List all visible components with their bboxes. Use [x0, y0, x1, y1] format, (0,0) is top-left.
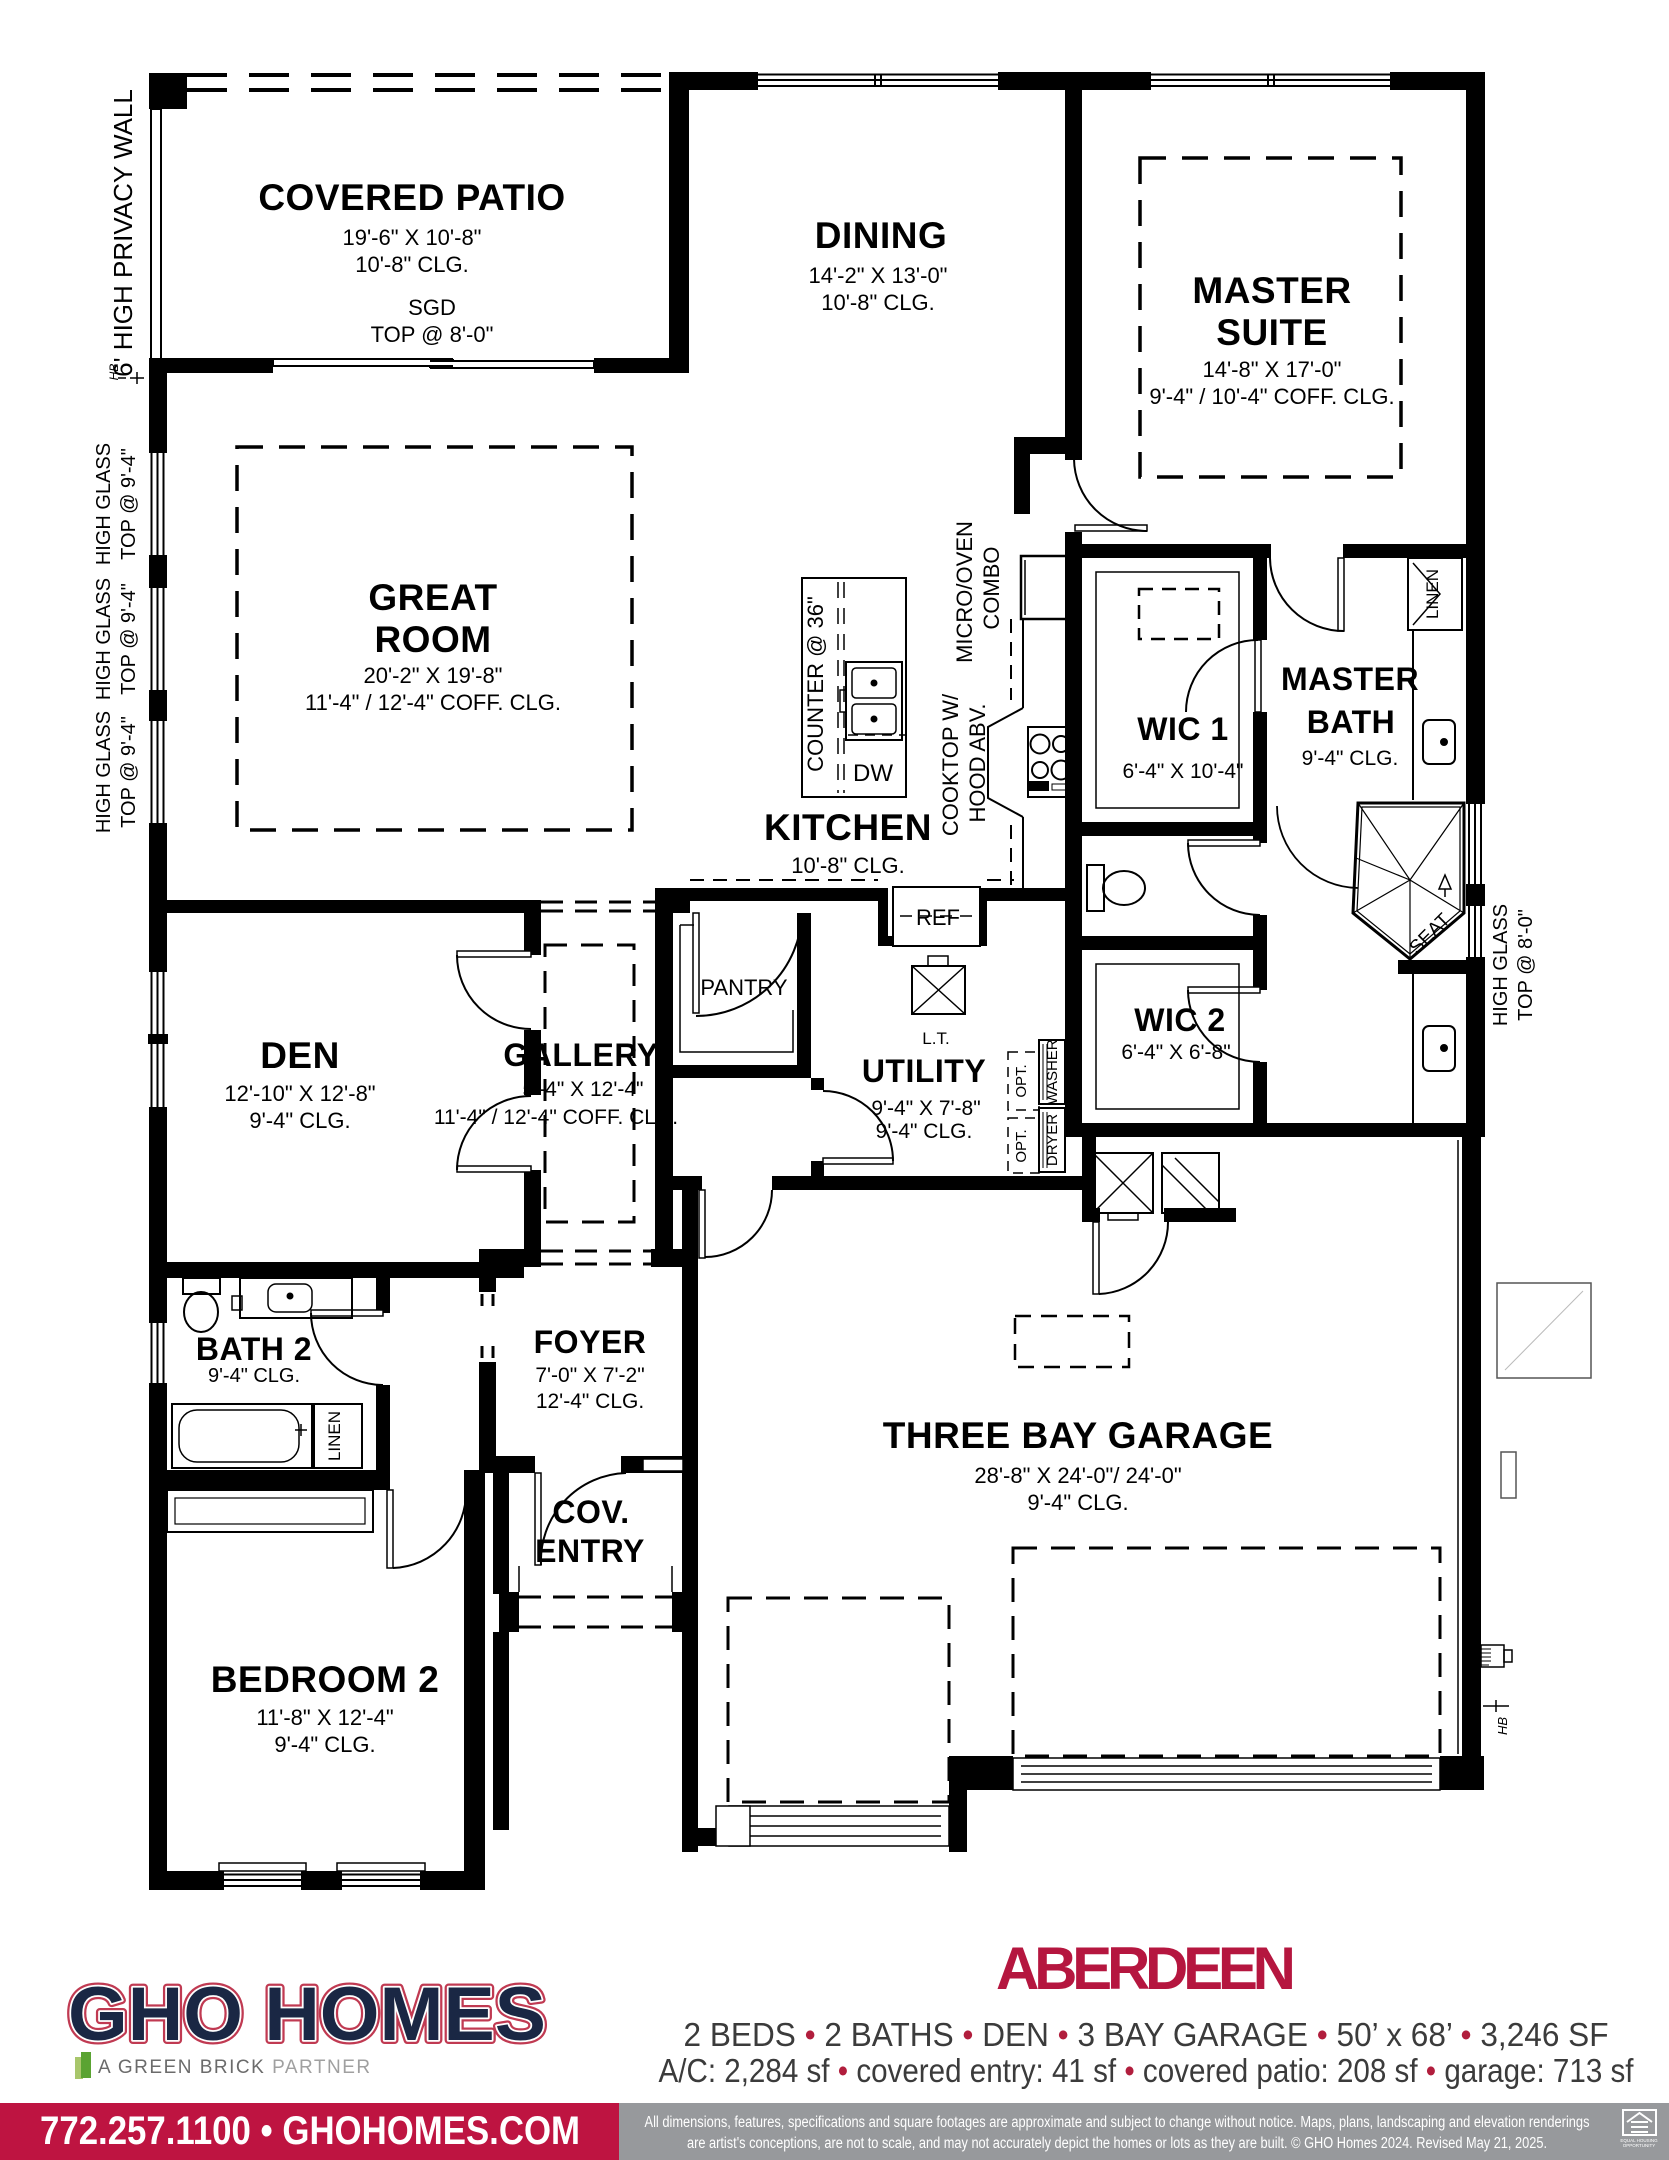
svg-text:ENTRY: ENTRY	[535, 1533, 645, 1569]
svg-text:All dimensions, features, spec: All dimensions, features, specifications…	[645, 2114, 1590, 2131]
svg-text:DW: DW	[853, 760, 893, 787]
svg-text:12'-10" X 12'-8": 12'-10" X 12'-8"	[224, 1081, 375, 1106]
svg-text:TOP @ 9'-4": TOP @ 9'-4"	[118, 448, 140, 560]
svg-text:COVERED PATIO: COVERED PATIO	[258, 177, 565, 218]
svg-text:TOP @ 9'-4": TOP @ 9'-4"	[118, 583, 140, 695]
svg-text:are artist's conceptions, are: are artist's conceptions, are not to sca…	[687, 2135, 1547, 2152]
svg-text:BATH: BATH	[1307, 704, 1396, 740]
svg-text:A/C: 2,284 sf • covered entry:: A/C: 2,284 sf • covered entry: 41 sf • c…	[659, 2052, 1635, 2089]
svg-text:9'-4" CLG.: 9'-4" CLG.	[876, 1120, 973, 1143]
svg-text:HB: HB	[1495, 1717, 1510, 1735]
svg-text:DEN: DEN	[260, 1035, 340, 1076]
svg-text:9'-4" / 10'-4" COFF. CLG.: 9'-4" / 10'-4" COFF. CLG.	[1149, 384, 1394, 409]
svg-text:BEDROOM 2: BEDROOM 2	[211, 1659, 440, 1700]
svg-text:10'-8" CLG.: 10'-8" CLG.	[821, 290, 935, 315]
svg-text:FOYER: FOYER	[534, 1324, 647, 1360]
svg-text:DRYER: DRYER	[1044, 1114, 1061, 1166]
svg-text:BATH 2: BATH 2	[196, 1331, 312, 1367]
svg-text:WIC 1: WIC 1	[1137, 711, 1228, 747]
svg-text:REF: REF	[916, 905, 960, 930]
svg-text:TOP @ 8'-0": TOP @ 8'-0"	[371, 322, 494, 347]
svg-text:11'-4" / 12'-4" COFF. CLG.: 11'-4" / 12'-4" COFF. CLG.	[305, 690, 561, 715]
svg-text:HIGH GLASS: HIGH GLASS	[93, 578, 115, 700]
svg-text:WIC 2: WIC 2	[1134, 1002, 1225, 1038]
svg-text:ABERDEEN: ABERDEEN	[996, 1935, 1296, 2002]
svg-text:GHO HOMES: GHO HOMES	[68, 1972, 546, 2057]
svg-text:WASHER: WASHER	[1044, 1039, 1061, 1104]
svg-text:HOOD ABV.: HOOD ABV.	[965, 703, 990, 822]
svg-text:LINEN: LINEN	[325, 1411, 344, 1461]
svg-text:THREE BAY GARAGE: THREE BAY GARAGE	[883, 1415, 1273, 1456]
svg-text:6' HIGH PRIVACY WALL: 6' HIGH PRIVACY WALL	[108, 89, 138, 377]
svg-text:9'-4" CLG.: 9'-4" CLG.	[249, 1108, 350, 1133]
svg-text:OPT.: OPT.	[1013, 1064, 1030, 1097]
svg-text:COUNTER @ 36": COUNTER @ 36"	[803, 596, 828, 772]
svg-text:9'-4" CLG.: 9'-4" CLG.	[1302, 747, 1399, 770]
svg-text:28'-8" X 24'-0"/ 24'-0": 28'-8" X 24'-0"/ 24'-0"	[974, 1463, 1181, 1488]
svg-text:10'-8" CLG.: 10'-8" CLG.	[791, 853, 905, 878]
svg-text:COMBO: COMBO	[979, 546, 1004, 629]
svg-text:ROOM: ROOM	[374, 619, 491, 660]
svg-text:COV.: COV.	[552, 1494, 629, 1530]
svg-text:PANTRY: PANTRY	[700, 975, 788, 1000]
svg-text:HIGH GLASS: HIGH GLASS	[93, 443, 115, 565]
svg-text:COOKTOP W/: COOKTOP W/	[938, 693, 963, 836]
svg-text:9'-4" CLG.: 9'-4" CLG.	[208, 1365, 300, 1387]
svg-text:LINEN: LINEN	[1423, 569, 1442, 619]
svg-text:TOP @ 9'-4": TOP @ 9'-4"	[118, 716, 140, 828]
svg-text:14'-8" X 17'-0": 14'-8" X 17'-0"	[1203, 357, 1342, 382]
svg-text:SGD: SGD	[408, 295, 456, 320]
svg-text:19'-6" X 10'-8": 19'-6" X 10'-8"	[343, 225, 482, 250]
svg-text:GREAT: GREAT	[368, 577, 497, 618]
svg-text:KITCHEN: KITCHEN	[764, 807, 932, 848]
svg-text:OPPORTUNITY: OPPORTUNITY	[1623, 2143, 1655, 2148]
svg-text:12'-4" CLG.: 12'-4" CLG.	[536, 1390, 644, 1413]
svg-text:HIGH GLASS: HIGH GLASS	[1490, 904, 1512, 1026]
svg-text:6'-4" X 10'-4": 6'-4" X 10'-4"	[1123, 760, 1244, 783]
svg-text:7'-0" X 7'-2": 7'-0" X 7'-2"	[535, 1364, 644, 1387]
svg-text:A GREEN BRICK PARTNER: A GREEN BRICK PARTNER	[98, 2057, 372, 2078]
svg-text:GALLERY: GALLERY	[503, 1037, 658, 1073]
svg-text:2 BEDS • 2 BATHS • DEN • 3 BAY: 2 BEDS • 2 BATHS • DEN • 3 BAY GARAGE • …	[684, 2016, 1609, 2053]
svg-text:MICRO/OVEN: MICRO/OVEN	[952, 521, 977, 663]
svg-text:MASTER: MASTER	[1281, 661, 1419, 697]
svg-text:10'-8" CLG.: 10'-8" CLG.	[355, 252, 469, 277]
svg-text:MASTER: MASTER	[1192, 270, 1351, 311]
svg-text:20'-2" X 19'-8": 20'-2" X 19'-8"	[364, 663, 503, 688]
svg-text:L.T.: L.T.	[922, 1029, 949, 1048]
svg-text:HB: HB	[107, 364, 121, 381]
svg-text:11'-8" X 12'-4": 11'-8" X 12'-4"	[256, 1705, 393, 1730]
svg-text:9'-4" CLG.: 9'-4" CLG.	[1027, 1490, 1128, 1515]
svg-text:772.257.1100 • GHOHOMES.COM: 772.257.1100 • GHOHOMES.COM	[40, 2109, 580, 2153]
svg-text:11'-4" / 12'-4" COFF. CLG.: 11'-4" / 12'-4" COFF. CLG.	[434, 1106, 678, 1129]
svg-text:9'-4" CLG.: 9'-4" CLG.	[274, 1732, 375, 1757]
svg-text:6'-4" X 6'-8": 6'-4" X 6'-8"	[1121, 1041, 1230, 1064]
svg-text:5'-4" X 12'-4": 5'-4" X 12'-4"	[523, 1078, 644, 1101]
svg-text:TOP @ 8'-0": TOP @ 8'-0"	[1515, 909, 1537, 1021]
svg-text:HIGH GLASS: HIGH GLASS	[93, 711, 115, 833]
svg-text:SUITE: SUITE	[1216, 312, 1327, 353]
svg-text:OPT.: OPT.	[1013, 1129, 1030, 1162]
svg-text:14'-2" X 13'-0": 14'-2" X 13'-0"	[809, 263, 948, 288]
svg-text:9'-4" X 7'-8": 9'-4" X 7'-8"	[871, 1097, 980, 1120]
svg-text:UTILITY: UTILITY	[862, 1053, 986, 1089]
svg-text:DINING: DINING	[815, 215, 948, 256]
